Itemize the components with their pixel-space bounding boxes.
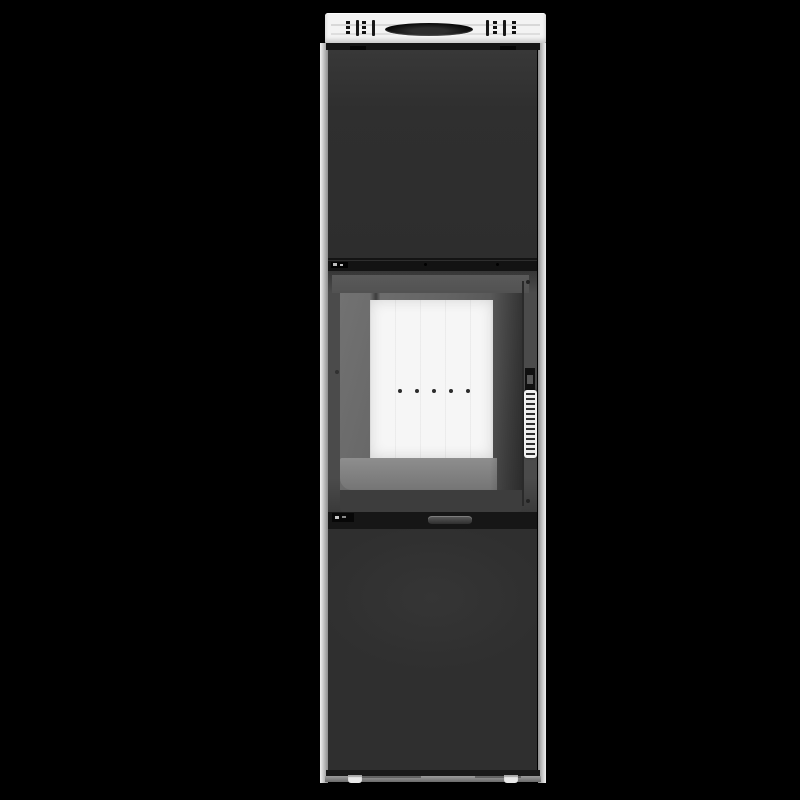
handle-bracket-pad bbox=[527, 375, 533, 384]
grille-hole-column bbox=[512, 21, 516, 35]
handle-ribs bbox=[526, 393, 535, 455]
grille-hole bbox=[512, 26, 516, 29]
grille-bar bbox=[503, 20, 506, 36]
glass-shadow bbox=[490, 293, 522, 490]
lower-body-panel bbox=[328, 529, 537, 774]
flue-opening-oval bbox=[385, 23, 473, 36]
upper-seam-band bbox=[328, 258, 537, 271]
stove-photo bbox=[320, 13, 546, 783]
grille-hole-column bbox=[362, 21, 366, 35]
screw bbox=[424, 263, 427, 266]
stove-foot-left bbox=[348, 775, 362, 783]
screw bbox=[496, 263, 499, 266]
grille-hole bbox=[493, 31, 497, 34]
grille-hole bbox=[512, 21, 516, 24]
air-hole bbox=[466, 389, 470, 393]
stove-foot-right bbox=[504, 775, 518, 783]
top-seam-strip bbox=[326, 43, 540, 50]
air-hole bbox=[415, 389, 419, 393]
grille-hole bbox=[362, 26, 366, 29]
combustion-door bbox=[328, 271, 537, 512]
grille-hole bbox=[512, 31, 516, 34]
hinge-detail bbox=[331, 262, 348, 268]
top-plate bbox=[325, 13, 546, 43]
side-rail-left bbox=[320, 43, 328, 783]
air-hole bbox=[398, 389, 402, 393]
metal-glint bbox=[335, 516, 339, 519]
air-hole bbox=[449, 389, 453, 393]
seam-highlight-line bbox=[328, 260, 537, 261]
firebox-floor bbox=[340, 458, 497, 490]
handle-bracket bbox=[525, 368, 535, 392]
grille-bar bbox=[486, 20, 489, 36]
ash-drawer-handle bbox=[428, 516, 472, 524]
lower-seam-band bbox=[328, 512, 537, 529]
latch-detail bbox=[332, 513, 354, 522]
grille-hole bbox=[362, 31, 366, 34]
screw bbox=[526, 499, 530, 503]
grille-hole bbox=[493, 26, 497, 29]
screw bbox=[335, 370, 339, 374]
side-rail-right bbox=[538, 43, 546, 783]
door-handle bbox=[524, 390, 537, 458]
vent-grille-left bbox=[346, 20, 378, 36]
vent-grille-right bbox=[484, 20, 516, 36]
grille-bar bbox=[372, 20, 375, 36]
grille-hole bbox=[346, 31, 350, 34]
metal-glint bbox=[340, 264, 343, 266]
door-bottom-frame bbox=[340, 490, 522, 512]
grille-hole-column bbox=[346, 21, 350, 35]
grille-hole bbox=[346, 26, 350, 29]
photo-background bbox=[0, 0, 800, 800]
grille-hole bbox=[493, 21, 497, 24]
screw bbox=[526, 280, 530, 284]
metal-glint bbox=[333, 263, 337, 266]
air-hole-row bbox=[398, 389, 470, 393]
metal-glint bbox=[342, 516, 346, 518]
grille-bar bbox=[356, 20, 359, 36]
firebox-interior bbox=[370, 300, 493, 458]
grille-hole-column bbox=[493, 21, 497, 35]
door-glass bbox=[340, 293, 522, 490]
grille-hole bbox=[346, 21, 350, 24]
air-hole bbox=[432, 389, 436, 393]
door-top-frame bbox=[332, 275, 529, 293]
grille-hole bbox=[362, 21, 366, 24]
upper-body-panel bbox=[328, 50, 537, 258]
